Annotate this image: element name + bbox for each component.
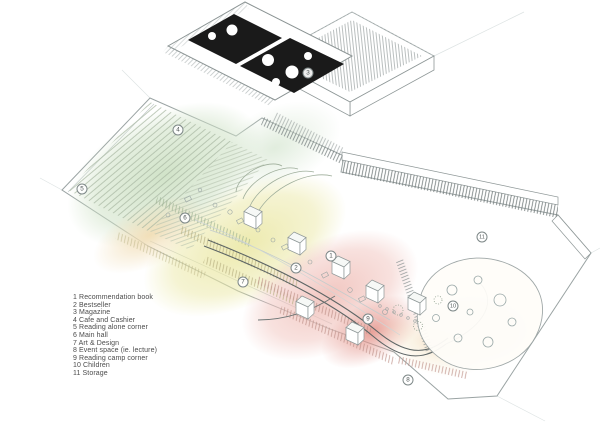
axonometric-plan-page: 1234567891011 1 Recommendation book2 Bes… [0,0,600,423]
legend: 1 Recommendation book2 Bestseller3 Magaz… [73,294,157,378]
legend-item-4: 4 Cafe and Cashier [73,317,157,325]
legend-item-6: 6 Main hall [73,332,157,340]
legend-item-3: 3 Magazine [73,309,157,317]
legend-item-8: 8 Event space (ie. lecture) [73,347,157,355]
legend-item-2: 2 Bestseller [73,302,157,310]
legend-item-5: 5 Reading alone corner [73,324,157,332]
legend-item-9: 9 Reading camp corner [73,355,157,363]
legend-item-11: 11 Storage [73,370,157,378]
legend-item-7: 7 Art & Design [73,340,157,348]
legend-item-10: 10 Children [73,362,157,370]
legend-item-1: 1 Recommendation book [73,294,157,302]
